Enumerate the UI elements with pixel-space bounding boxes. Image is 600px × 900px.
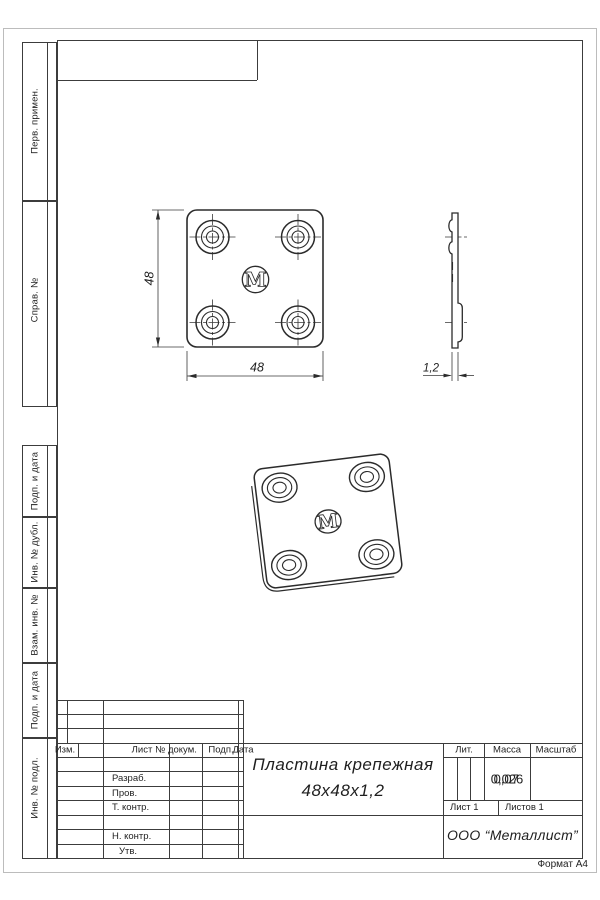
- drawing-sheet: { "page": { "format_label": "Формат А4" …: [0, 0, 600, 900]
- side-profile: [449, 213, 462, 348]
- dimension-height: 48: [143, 210, 185, 347]
- logo-letter-3d: M: [316, 510, 340, 534]
- dim-height-text: 48: [143, 272, 157, 286]
- dimension-width: 48: [187, 351, 323, 381]
- drawing-canvas: M 48 48: [0, 0, 600, 900]
- dimension-thickness: 1,2: [423, 352, 474, 381]
- logo-letter: M: [244, 268, 266, 292]
- dim-width-text: 48: [250, 361, 264, 375]
- side-view: 1,2: [423, 213, 474, 381]
- main-view: M 48 48: [143, 210, 324, 381]
- isometric-view: M: [250, 453, 404, 593]
- dim-thickness-text: 1,2: [423, 363, 440, 375]
- center-logo: M: [242, 266, 268, 292]
